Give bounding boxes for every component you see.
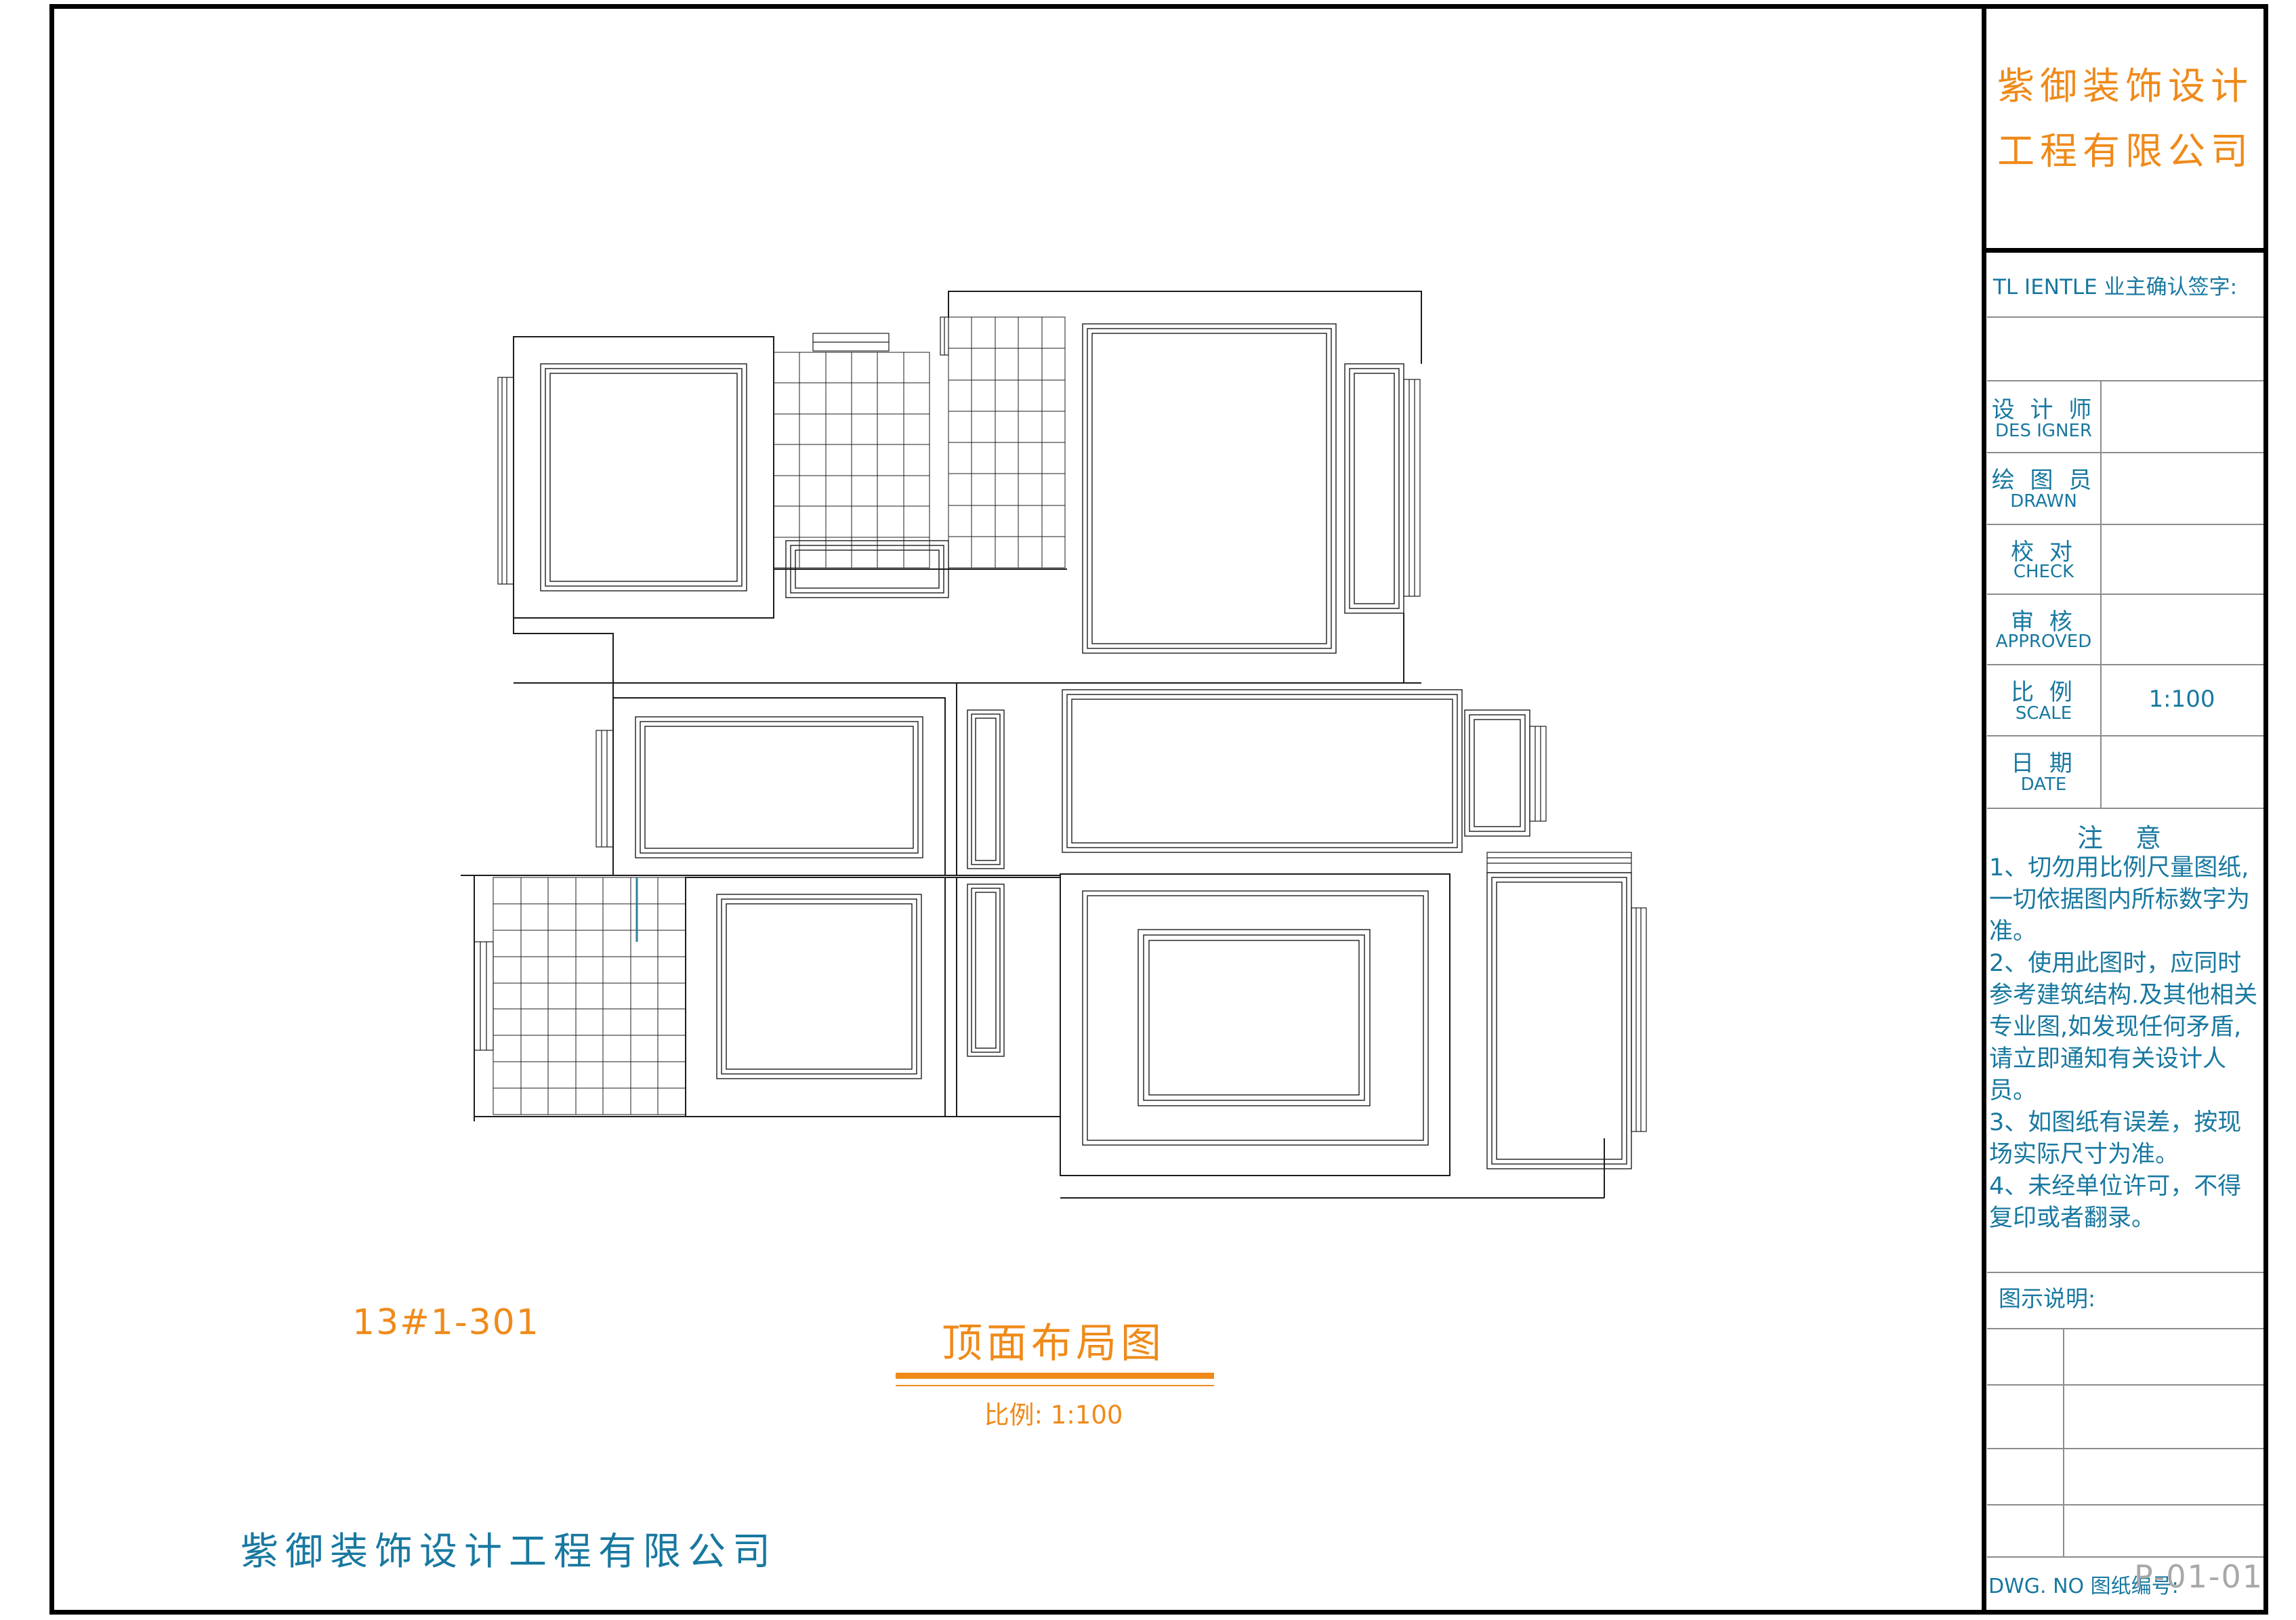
legend-label: 图示说明: — [1999, 1281, 2095, 1313]
tb-line — [1987, 1272, 2263, 1273]
plan-title: 顶面布局图 — [915, 1310, 1192, 1369]
tb-line — [1987, 664, 2263, 665]
tb-line — [1987, 735, 2263, 736]
room-topleft-wall — [514, 337, 774, 618]
legend-table-line — [1987, 1328, 2263, 1329]
drawn-label-zh: 绘 图 员 — [1987, 461, 2100, 495]
plan-title-underline-thin — [896, 1385, 1214, 1386]
designer-label-en: DES IGNER — [1987, 421, 2100, 441]
tb-label-value-divider — [2100, 380, 2102, 808]
tb-line — [1987, 316, 2263, 318]
check-label-en: CHECK — [1987, 562, 2100, 582]
legend-table-line — [1987, 1384, 2263, 1386]
tile-grids — [493, 317, 1065, 1115]
designer-label-zh: 设 计 师 — [1987, 391, 2100, 424]
date-label-en: DATE — [1987, 774, 2100, 795]
client-sign-label: TL IENTLE 业主确认签字: — [1993, 270, 2237, 300]
company-name-line1: 紫御装饰设计 — [1987, 56, 2263, 110]
tb-line — [1987, 452, 2263, 453]
approved-label-en: APPROVED — [1987, 631, 2100, 652]
room-bottomright-wall — [1060, 874, 1450, 1176]
legend-table-line — [1987, 1504, 2263, 1505]
ceiling-coffers — [541, 324, 1631, 1169]
notes-block: 1、切勿用比例尺量图纸,一切依据图内所标数字为准。 2、使用此图时，应同时参考建… — [1989, 852, 2264, 1234]
legend-table-line — [1987, 1556, 2263, 1558]
scale-value: 1:100 — [2100, 686, 2263, 713]
date-label-zh: 日 期 — [1987, 745, 2100, 778]
scale-label-zh: 比 例 — [1987, 673, 2100, 707]
note-3: 3、如图纸有误差，按现场实际尺寸为准。 — [1989, 1107, 2264, 1171]
note-2: 2、使用此图时，应同时参考建筑结构.及其他相关专业图,如发现任何矛盾,请立即通知… — [1989, 948, 2264, 1107]
company-name-line2: 工程有限公司 — [1987, 121, 2263, 175]
scale-label-en: SCALE — [1987, 703, 2100, 724]
drawn-label-en: DRAWN — [1987, 491, 2100, 512]
unit-number-label: 13#1-301 — [352, 1302, 542, 1343]
plan-scale-label: 比例: 1:100 — [915, 1394, 1192, 1431]
drawing-sheet: 13#1-301 顶面布局图 比例: 1:100 紫御装饰设计工程有限公司 紫御… — [0, 0, 2296, 1620]
note-1: 1、切勿用比例尺量图纸,一切依据图内所标数字为准。 — [1989, 852, 2264, 948]
tb-line — [1987, 808, 2263, 809]
tb-line — [1987, 380, 2263, 381]
room-bottomleft-wall — [686, 877, 945, 1117]
plan-title-underline-thick — [896, 1373, 1214, 1379]
tb-line — [1987, 594, 2263, 595]
footer-company-name: 紫御装饰设计工程有限公司 — [241, 1521, 777, 1576]
dwg-number-value: P-01-01 — [2134, 1558, 2263, 1595]
tb-line — [1987, 524, 2263, 525]
legend-table-divider — [2063, 1328, 2064, 1556]
note-4: 4、未经单位许可，不得复印或者翻录。 — [1989, 1171, 2264, 1234]
notes-title: 注 意 — [1987, 817, 2263, 854]
legend-table-line — [1987, 1448, 2263, 1449]
